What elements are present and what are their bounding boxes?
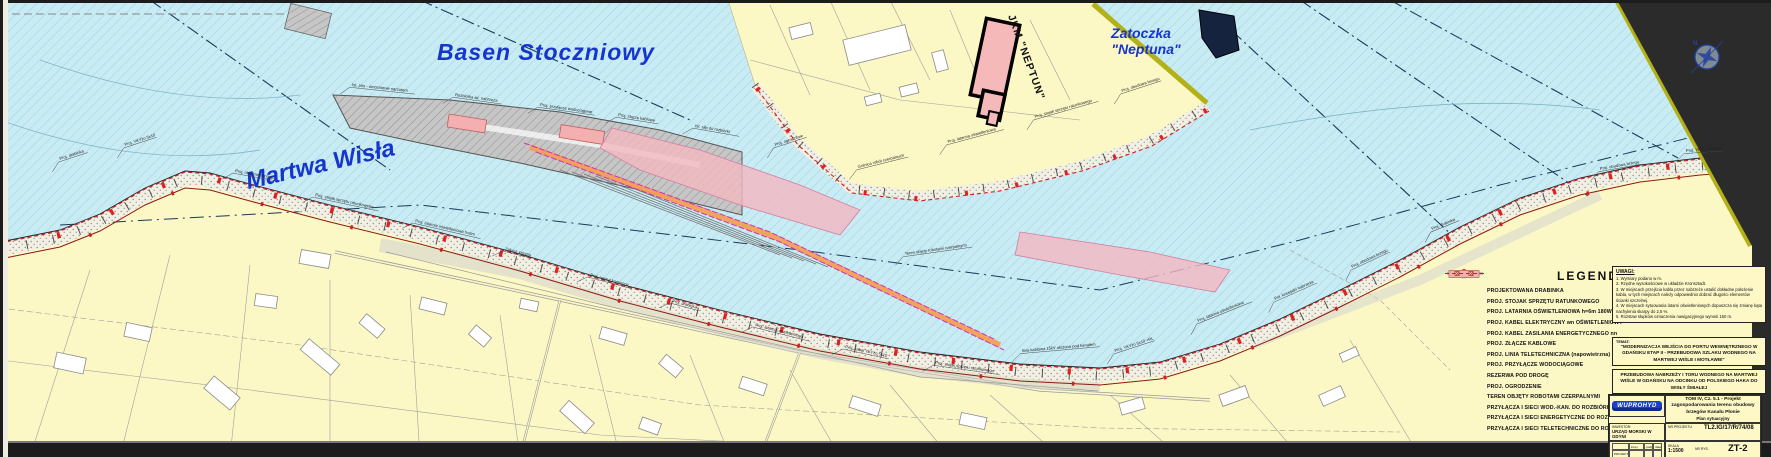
legend-item: PROJ. KABEL ELEKTRYCZNY wn OŚWIETLENIOWY xyxy=(1443,318,1629,329)
project-number-cell: NR PROJEKTU TL2.IG/17/R/74/08 xyxy=(1665,423,1761,441)
legend-item: REZERWA POD DROGĘ xyxy=(1443,371,1629,382)
legend-item: PRZYŁĄCZA I SIECI ENERGETYCZNE DO ROZBIÓ… xyxy=(1443,413,1629,424)
legend-item: PRZYŁĄCZA I SIECI WOD.-KAN. DO ROZBIÓRKI xyxy=(1443,403,1629,414)
sign-col-name: imię i nazwisko xyxy=(1629,443,1644,450)
legend-item: PRZYŁĄCZA I SIECI TELETECHNICZNE DO ROZB… xyxy=(1443,424,1629,435)
investor-name: URZĄD MORSKI W GDYNI xyxy=(1612,429,1662,439)
legend-item: PROJ. KABEL ZASILANIA ENERGETYCZNEGO nn xyxy=(1443,328,1629,339)
project-title-text: "MODERNIZACJA WEJŚCIA DO PORTU WEWNĘTRZN… xyxy=(1616,344,1762,363)
project-number-label: NR PROJEKTU xyxy=(1668,425,1704,431)
volume-title-cell: TOM IV, Cz. 5.1 - Projekt zagospodarowan… xyxy=(1665,395,1761,423)
sheet-number-label: NR RYS. xyxy=(1695,447,1718,451)
project-subtitle-box: PRZEBUDOWA NABRZEŻY I TORU WODNEGO NA MA… xyxy=(1612,369,1766,394)
scale-sheet-cell: SKALA 1:1500 NR RYS. ZT-2 xyxy=(1665,441,1761,457)
drawing-title: Plan sytuacyjny xyxy=(1668,416,1758,421)
volume-title: TOM IV, Cz. 5.1 - Projekt zagospodarowan… xyxy=(1668,397,1758,416)
company-logo: WUPROHYD xyxy=(1609,395,1665,417)
investor-cell: INWESTOR: URZĄD MORSKI W GDYNI xyxy=(1609,423,1665,441)
project-subtitle-text: PRZEBUDOWA NABRZEŻY I TORU WODNEGO NA MA… xyxy=(1616,372,1762,391)
zatoczka-label-line1: Zatoczka xyxy=(1110,25,1171,41)
legend-item: TEREN OBJĘTY ROBOTAMI CZERPALNYMI xyxy=(1443,392,1629,403)
note-item: 4. W miejscach sytuowania latarni oświet… xyxy=(1616,303,1762,314)
legend-item: PROJ. OGRODZENIE xyxy=(1443,381,1629,392)
legend-item: SL PROJ. STOJAK SPRZĘTU RATUNKOWEGO xyxy=(1443,297,1629,308)
project-number: TL2.IG/17/R/74/08 xyxy=(1704,425,1758,431)
scale-value: 1:1500 xyxy=(1668,448,1695,454)
site-plan-sheet: N Basen Stoczniowy Martwa Wisła Zatoczka… xyxy=(0,0,1771,457)
notes-box: UWAGI: 1. Wymiary podano w m. 2. Rzędne … xyxy=(1612,266,1766,323)
company-name: WUPROHYD xyxy=(1612,401,1662,411)
note-item: 3. W miejscach przejścia kabla przez nab… xyxy=(1616,287,1762,303)
sign-col-date: data xyxy=(1653,443,1662,450)
sign-col-signature: podpis xyxy=(1644,443,1653,450)
basen-stoczniowy-label: Basen Stoczniowy xyxy=(437,39,655,65)
project-title-box: TEMAT: "MODERNIZACJA WEJŚCIA DO PORTU WE… xyxy=(1612,337,1766,366)
legend-item: PROJEKTOWANA DRABINKA xyxy=(1443,286,1629,297)
notes-title: UWAGI: xyxy=(1616,269,1762,275)
legend-item: PROJ. PRZYŁĄCZE WODOCIĄGOWE xyxy=(1443,360,1629,371)
title-block: WUPROHYD TOM IV, Cz. 5.1 - Projekt zagos… xyxy=(1608,394,1762,457)
legend-item: PROJ. LINIA TELETECHNICZNA (napowietrzna… xyxy=(1443,350,1629,361)
legend-item: PROJ. ZŁĄCZE KABLOWE xyxy=(1443,339,1629,350)
legend-panel: LEGENDA PROJEKTOWANA DRABINKA SL PROJ. S… xyxy=(1443,269,1629,434)
sign-row-designer: PROJEKTOWAŁ xyxy=(1612,450,1629,457)
note-item: 5. Rozstaw słupków oznaczenia nawigacyjn… xyxy=(1616,314,1762,319)
legend-item: PROJ. LATARNIA OŚWIETLENIOWA h=6m 180W -… xyxy=(1443,307,1629,318)
signature-grid: imię i nazwisko podpis data PROJEKTOWAŁ … xyxy=(1609,441,1665,457)
compass-north-label: N xyxy=(1693,41,1697,47)
zatoczka-label-line2: "Neptuna" xyxy=(1111,41,1181,57)
sheet-number: ZT-2 xyxy=(1718,443,1759,454)
